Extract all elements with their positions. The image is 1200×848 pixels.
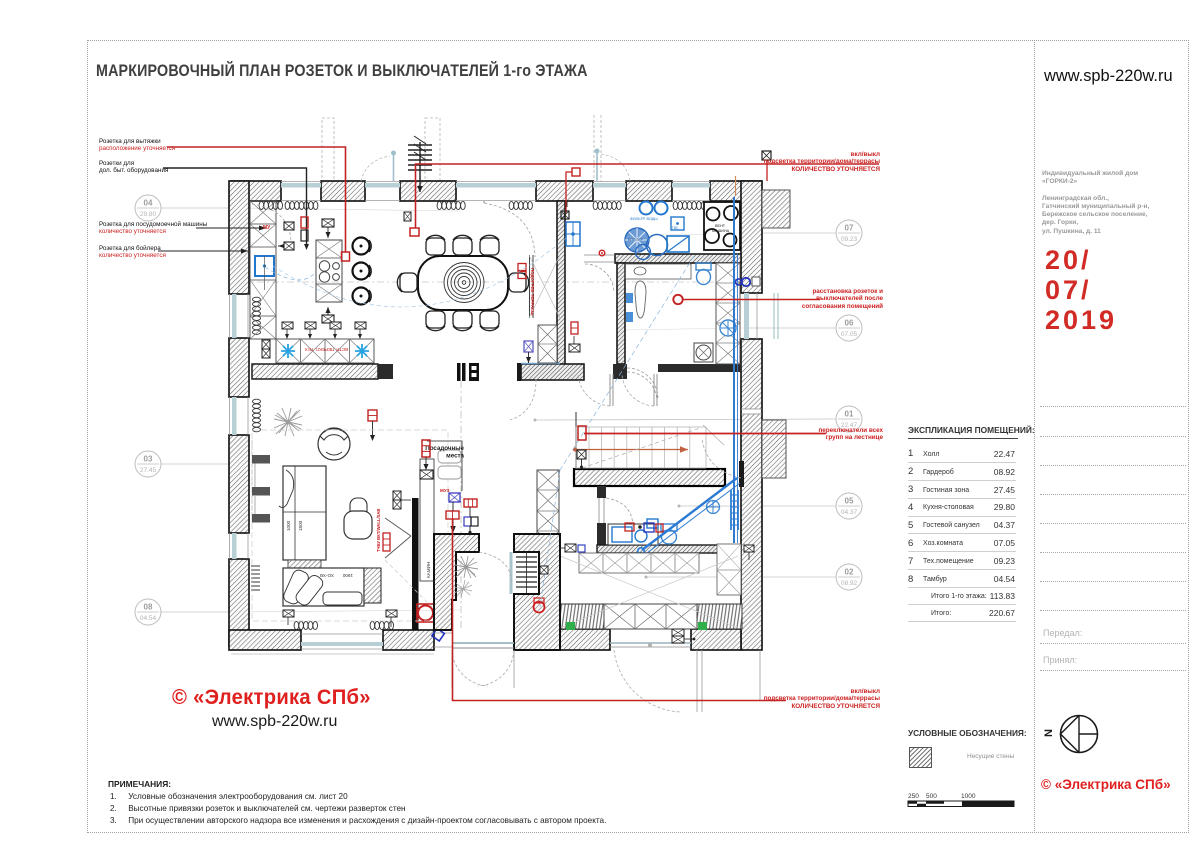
svg-text:БОЙЛЕР: БОЙЛЕР — [628, 238, 643, 242]
svg-text:1900: 1900 — [342, 573, 353, 578]
svg-text:1000: 1000 — [286, 520, 291, 531]
svg-text:ТЧБУ ВКТ/WALL/SAB: ТЧБУ ВКТ/WALL/SAB — [376, 509, 381, 552]
svg-text:02: 02 — [845, 568, 854, 577]
svg-text:МУ: МУ — [263, 225, 271, 231]
svg-text:03: 03 — [144, 455, 153, 464]
svg-text:04.37: 04.37 — [841, 509, 858, 516]
svg-text:N: N — [1043, 729, 1055, 737]
svg-text:27.45: 27.45 — [140, 467, 157, 474]
svg-text:250: 250 — [908, 793, 919, 800]
svg-text:29.80: 29.80 — [140, 211, 157, 218]
svg-text:МАШИНА: МАШИНА — [712, 229, 730, 233]
svg-text:ФИЛЬТР. ВОДЫ: ФИЛЬТР. ВОДЫ — [630, 217, 658, 221]
svg-text:1000: 1000 — [961, 793, 976, 800]
svg-text:Посадочные: Посадочные — [425, 445, 464, 452]
svg-text:05: 05 — [845, 497, 854, 506]
svg-text:1800: 1800 — [298, 520, 303, 531]
svg-text:ВСТР. ПЕРЕКЛ. ТЕХ: ВСТР. ПЕРЕКЛ. ТЕХ — [305, 347, 348, 352]
svg-text:07: 07 — [845, 224, 854, 233]
svg-text:06: 06 — [845, 319, 854, 328]
svg-text:01: 01 — [845, 410, 854, 419]
svg-text:08: 08 — [144, 603, 153, 612]
svg-text:МУЗ: МУЗ — [440, 488, 450, 493]
svg-text:места: места — [446, 453, 464, 460]
svg-text:ПОДОГРЕВ ТЕРРАСЫ: ПОДОГРЕВ ТЕРРАСЫ — [530, 268, 535, 315]
svg-text:500: 500 — [926, 793, 937, 800]
svg-text:04: 04 — [144, 199, 153, 208]
svg-text:09.23: 09.23 — [841, 236, 858, 243]
svg-text:08.92: 08.92 — [841, 580, 858, 587]
svg-text:ГВС: ГВС — [672, 226, 679, 230]
svg-text:ХО-ХВ: ХО-ХВ — [320, 573, 334, 578]
svg-text:КАМИН: КАМИН — [426, 562, 431, 578]
svg-text:ВЕНТ: ВЕНТ — [715, 224, 726, 228]
svg-text:04.54: 04.54 — [140, 615, 157, 622]
svg-text:07.05: 07.05 — [841, 331, 858, 338]
